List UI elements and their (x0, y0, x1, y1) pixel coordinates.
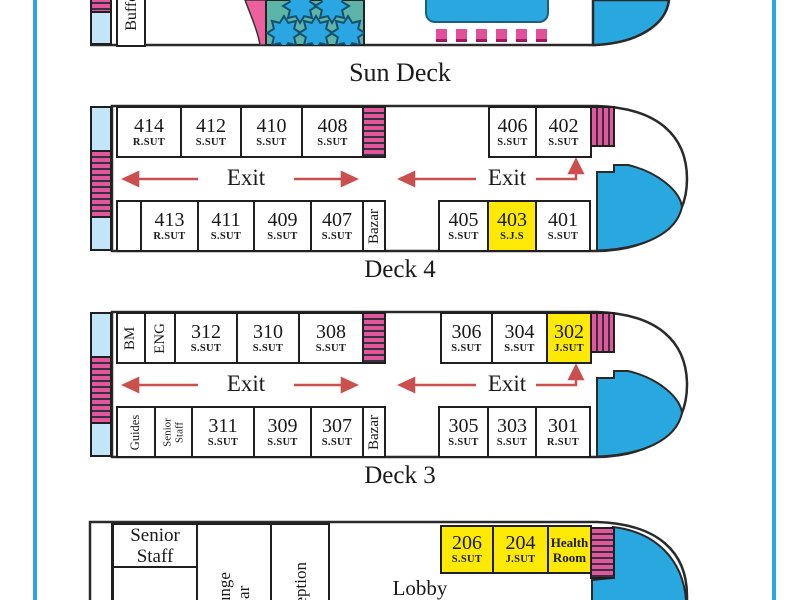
cabin-403-highlighted: 403 S.J.S (487, 200, 537, 252)
cabin-414: 414 R.SUT (116, 106, 182, 158)
cabin-type: R.SUT (547, 437, 579, 449)
deck4-empty-cell (116, 200, 142, 252)
cabin-number: 406 (498, 116, 528, 137)
deck-chair-marker (476, 29, 487, 42)
cabin-number: 204 (506, 533, 536, 554)
deck2-lounge-bar-cell: Lounge Bar (196, 523, 272, 600)
cabin-number: 304 (505, 322, 535, 343)
cabin-402: 402 S.SUT (535, 106, 592, 158)
cabin-408: 408 S.SUT (301, 106, 364, 158)
cabin-310: 310 S.SUT (236, 312, 300, 364)
eng-label: ENG (153, 323, 168, 354)
deck4-exit-label-left: Exit (216, 165, 276, 191)
deck4-bazar-label: Bazar (367, 209, 382, 244)
cabin-305: 305 S.SUT (438, 406, 489, 458)
cabin-type: J.SUT (554, 343, 584, 355)
cabin-308: 308 S.SUT (298, 312, 364, 364)
lounge-bar-label: Lounge Bar (215, 568, 253, 600)
cabin-302-highlighted: 302 J.SUT (546, 312, 592, 364)
buffet-label: Buffet (124, 0, 139, 31)
deck2-senior-staff-label: Senior Staff (114, 525, 196, 567)
cabin-number: 409 (268, 210, 298, 231)
cabin-number: 302 (554, 322, 584, 343)
cabin-405: 405 S.SUT (438, 200, 489, 252)
deck3-bazar-label: Bazar (367, 415, 382, 450)
deck2-reception-cell: Reception (270, 523, 330, 600)
cabin-number: 412 (196, 116, 226, 137)
deck4-bow-stairs (590, 106, 615, 147)
cabin-type: S.SUT (316, 343, 346, 355)
deck4-bazar-cell: Bazar (362, 200, 386, 252)
cabin-312: 312 S.SUT (174, 312, 238, 364)
deck-chair-marker (536, 29, 547, 42)
cabin-409: 409 S.SUT (253, 200, 312, 252)
sun-deck-pink-awning (245, 0, 266, 45)
cabin-number: 410 (257, 116, 287, 137)
deck3-bazar-cell: Bazar (362, 406, 386, 458)
cabin-type: R.SUT (133, 137, 165, 149)
cabin-type: S.SUT (497, 437, 527, 449)
lobby-label: Lobby (355, 576, 485, 600)
hull-outlines-graphic (0, 0, 800, 600)
cabin-307: 307 S.SUT (310, 406, 364, 458)
sun-deck-stern-stairs (90, 0, 112, 13)
cabin-type: S.SUT (317, 137, 347, 149)
cabin-type: S.SUT (452, 554, 482, 566)
cabin-type: S.SUT (448, 231, 478, 243)
cabin-type: R.SUT (153, 231, 185, 243)
cabin-number: 405 (449, 210, 479, 231)
cabin-number: 306 (452, 322, 482, 343)
deck2-senior-staff-cell: Senior Staff (112, 523, 198, 568)
deck3-title: Deck 3 (320, 462, 480, 490)
cabin-type: S.SUT (548, 231, 578, 243)
cabin-number: 411 (211, 210, 240, 231)
sun-deck-bow-water (593, 0, 669, 45)
cabin-206-highlighted: 206 S.SUT (440, 525, 494, 574)
frame-line-right (772, 0, 776, 600)
cabin-number: 407 (322, 210, 352, 231)
cabin-303: 303 S.SUT (487, 406, 537, 458)
sun-deck-title: Sun Deck (300, 58, 500, 88)
deck-chair-marker (436, 29, 447, 42)
cabin-number: 307 (322, 416, 352, 437)
cabin-401: 401 S.SUT (535, 200, 591, 252)
cabin-number: 311 (208, 416, 237, 437)
cabin-301: 301 R.SUT (535, 406, 591, 458)
cabin-type: S.J.S (500, 231, 524, 243)
cabin-306: 306 S.SUT (440, 312, 493, 364)
cabin-type: S.SUT (256, 137, 286, 149)
deck3-center-stairs (362, 312, 386, 364)
cabin-number: 305 (449, 416, 479, 437)
deck2-bow-stairs (590, 527, 615, 579)
deck4-stern-strip (90, 106, 112, 251)
cabin-type: S.SUT (208, 437, 238, 449)
cabin-304: 304 S.SUT (491, 312, 548, 364)
cabin-number: 301 (548, 416, 578, 437)
deck4-title: Deck 4 (320, 256, 480, 284)
health-room-label: Health Room (549, 535, 590, 565)
deck3-senior-staff-cell: Senior Staff (154, 406, 193, 458)
senior-staff-label: Senior Staff (162, 409, 185, 455)
deck3-eng-cell: ENG (144, 312, 176, 364)
health-room-cell: Health Room (547, 525, 592, 574)
cabin-number: 414 (134, 116, 164, 137)
cabin-type: S.SUT (497, 137, 527, 149)
cabin-309: 309 S.SUT (253, 406, 312, 458)
cabin-410: 410 S.SUT (240, 106, 303, 158)
cabin-type: S.SUT (451, 343, 481, 355)
cabin-number: 303 (497, 416, 527, 437)
cabin-type: S.SUT (267, 231, 297, 243)
reception-label: Reception (293, 562, 308, 600)
cabin-407: 407 S.SUT (310, 200, 364, 252)
cabin-number: 408 (318, 116, 348, 137)
cabin-412: 412 S.SUT (180, 106, 242, 158)
buffet-cell: Buffet (116, 0, 146, 47)
cabin-number: 402 (549, 116, 579, 137)
cabin-number: 206 (452, 533, 482, 554)
cabin-406: 406 S.SUT (488, 106, 537, 158)
cabin-type: S.SUT (322, 231, 352, 243)
deck3-exit-label-left: Exit (216, 371, 276, 397)
cabin-number: 401 (548, 210, 578, 231)
swimming-pool (425, 0, 549, 23)
deck3-guides-cell: Guides (116, 406, 156, 458)
cabin-type: S.SUT (191, 343, 221, 355)
cabin-413: 413 R.SUT (140, 200, 199, 252)
deck-chair-marker (516, 29, 527, 42)
cabin-311: 311 S.SUT (191, 406, 255, 458)
cabin-type: S.SUT (322, 437, 352, 449)
cabin-number: 308 (316, 322, 346, 343)
deck-chair-marker (496, 29, 507, 42)
ship-deck-plan: { "exit": { "label": "Exit" }, "sun_deck… (0, 0, 800, 600)
cabin-number: 413 (155, 210, 185, 231)
cabin-type: S.SUT (548, 137, 578, 149)
deck3-bow-stairs (590, 312, 615, 353)
sun-deck-stern-strip (90, 0, 112, 45)
cabin-type: S.SUT (211, 231, 241, 243)
deck4-center-stairs (362, 106, 386, 158)
deck3-stern-strip (90, 312, 112, 457)
frame-line-left (33, 0, 37, 600)
cabin-type: S.SUT (267, 437, 297, 449)
deck4-exit-label-right: Exit (477, 165, 537, 191)
cabin-type: S.SUT (196, 137, 226, 149)
cabin-type: S.SUT (504, 343, 534, 355)
deck2-empty-cell (112, 566, 198, 600)
cabin-type: J.SUT (506, 554, 536, 566)
deck4-stern-stairs (90, 150, 112, 218)
cabin-number: 309 (268, 416, 298, 437)
cabin-number: 403 (497, 210, 527, 231)
guides-label: Guides (128, 414, 143, 449)
bm-label: BM (124, 326, 139, 349)
cabin-number: 312 (191, 322, 221, 343)
cabin-411: 411 S.SUT (197, 200, 255, 252)
cabin-204-highlighted: 204 J.SUT (492, 525, 549, 574)
deck3-stern-stairs (90, 356, 112, 424)
deck-chair-marker (456, 29, 467, 42)
cabin-number: 310 (253, 322, 283, 343)
deck3-exit-label-right: Exit (477, 371, 537, 397)
cabin-type: S.SUT (448, 437, 478, 449)
deck3-bm-cell: BM (116, 312, 146, 364)
cabin-type: S.SUT (253, 343, 283, 355)
